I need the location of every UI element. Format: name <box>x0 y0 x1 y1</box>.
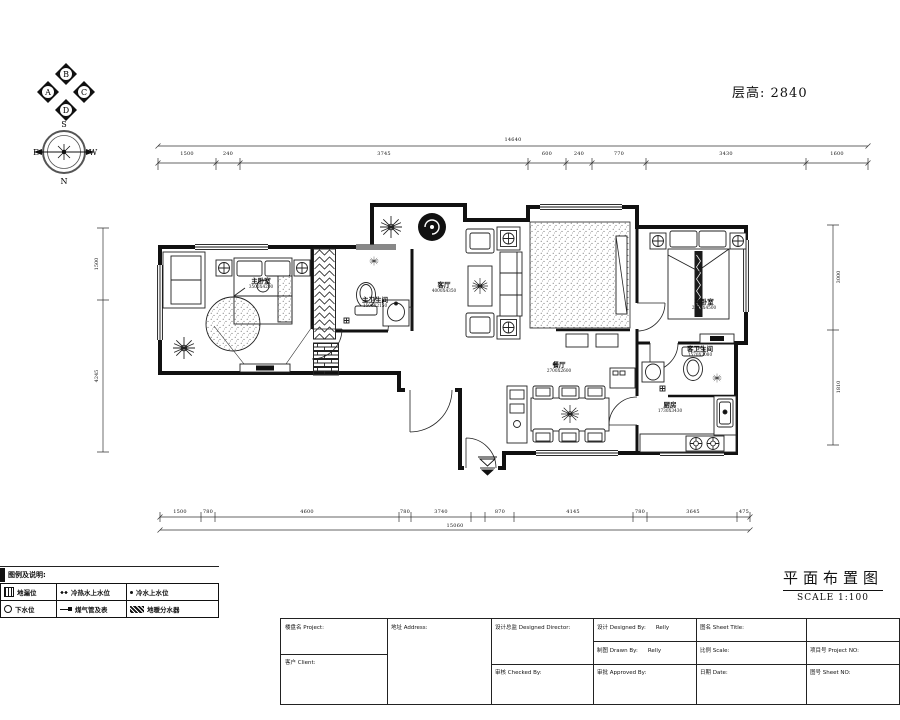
address-label: 地址 Address: <box>391 623 428 631</box>
floor-heating-manifold-icon <box>130 606 144 613</box>
dim-top: 600 <box>542 151 552 157</box>
floor-drain-icon <box>4 587 14 597</box>
room-label-kitchen: 厨房 1730X3430 <box>658 402 682 414</box>
dim-left: 4245 <box>94 370 100 383</box>
legend-label: 冷热水上水位 <box>71 587 110 597</box>
plant-icon <box>561 405 579 423</box>
legend-label: 地暖分水器 <box>147 604 180 614</box>
room-label-dining-room: 餐厅 2700X2600 <box>547 362 571 374</box>
dim-top: 770 <box>614 151 624 157</box>
design-director-label: 设计总监 Designed Director: <box>495 623 570 631</box>
compass-west: W <box>89 148 98 157</box>
room-size: 2745X4500 <box>692 306 716 311</box>
cold-water-icon <box>130 591 133 594</box>
entry-hall-decor <box>380 213 446 241</box>
room-label-guest-bedroom: 客卧室 2745X4500 <box>692 299 716 311</box>
brick-feature-wall <box>314 343 339 375</box>
dim-bottom: 4145 <box>566 509 580 515</box>
dim-top: 240 <box>574 151 584 157</box>
dining-room-furniture <box>507 386 609 443</box>
master-bathroom-fixtures <box>344 257 409 327</box>
guest-bedroom-furniture <box>650 231 746 343</box>
elevation-letter-a: A <box>44 88 51 97</box>
drawing-sheet: B A C D S N E W <box>0 0 900 720</box>
dim-bottom: 3740 <box>434 509 448 515</box>
dim-top: 1500 <box>180 151 194 157</box>
plant-icon <box>173 337 195 359</box>
room-label-master-bath: 主卫生间 1500X2150 <box>362 297 388 309</box>
room-size: 1500X2150 <box>362 304 388 309</box>
approved-by-label: 审批 Approved By: <box>597 668 646 676</box>
legend-item: 冷热水上水位 <box>57 584 127 601</box>
room-size: 2700X2600 <box>547 369 571 374</box>
legend-item: 下水位 <box>1 601 57 617</box>
dim-bottom: 4600 <box>300 509 314 515</box>
sheet-scale: SCALE 1:100 <box>768 593 898 603</box>
label: 制图 Drawn By: <box>597 648 638 654</box>
room-label-master-bedroom: 主卧室 3500X4200 <box>249 278 273 290</box>
legend-label: 下水位 <box>15 604 35 614</box>
dim-top: 240 <box>223 151 233 157</box>
title-block-table: 楼盘名 Project: 客户 Client: 地址 Address: 设计总监… <box>280 618 900 705</box>
elevation-marker-icon: B A C D <box>37 63 95 121</box>
compass-south: S <box>61 120 66 129</box>
dim-top: 1600 <box>830 151 844 157</box>
legend-item: 地暖分水器 <box>127 601 218 617</box>
legend-title: 图例及说明: <box>8 570 46 580</box>
sheet-title: 平面布置图 <box>783 567 883 591</box>
drawn-by-value: Relly <box>648 648 661 654</box>
legend-label: 煤气管及表 <box>75 604 108 614</box>
sheet-title-label: 图名 Sheet Title: <box>700 623 744 631</box>
legend-item: 冷水上水位 <box>127 584 218 601</box>
compass-icon: S N E W <box>33 120 98 186</box>
room-label-guest-bath: 客卫生间 1570X2080 <box>687 346 713 358</box>
dim-bottom: 3645 <box>686 509 700 515</box>
kitchen-fixtures <box>640 396 736 452</box>
room-size: 1570X2080 <box>687 353 713 358</box>
compass-north: N <box>61 177 68 186</box>
floor-height-label: 层高: 2840 <box>732 82 808 101</box>
dim-bottom: 780 <box>400 509 410 515</box>
drain-outlet-icon <box>4 605 12 613</box>
sheet-no-label: 图号 Sheet NO: <box>810 668 851 676</box>
dim-top-total: 14640 <box>505 137 522 143</box>
room-label-living-room: 客厅 4000X4350 <box>432 282 456 294</box>
living-room-furniture <box>466 227 522 339</box>
client-label: 客户 Client: <box>285 658 316 666</box>
project-no-label: 项目号 Project NO: <box>810 646 859 654</box>
legend-item: 地漏位 <box>1 584 57 601</box>
round-rug <box>206 297 260 351</box>
elevation-letter-d: D <box>63 106 69 115</box>
plant-icon <box>380 216 402 238</box>
dim-top: 3430 <box>719 151 733 157</box>
dim-bottom: 870 <box>495 509 505 515</box>
legend-title-tab <box>0 568 5 582</box>
sofa <box>500 252 522 316</box>
legend-item: 煤气管及表 <box>57 601 127 617</box>
designed-by-value: Relly <box>656 625 669 631</box>
dim-left: 1500 <box>94 258 100 271</box>
vent-icon <box>713 374 722 383</box>
dim-bottom: 780 <box>635 509 645 515</box>
legend-label: 地漏位 <box>17 587 37 597</box>
hot-cold-water-icon <box>60 591 68 594</box>
dim-right: 3000 <box>836 271 842 284</box>
sheet-title-block: 平面布置图 SCALE 1:100 <box>768 567 898 603</box>
room-size: 1730X3430 <box>658 409 682 414</box>
drawn-by-label: 制图 Drawn By:Relly <box>597 646 661 654</box>
dim-bottom-total: 15060 <box>447 523 464 529</box>
legend-label: 冷水上水位 <box>136 587 169 597</box>
wardrobe-closet <box>314 249 336 339</box>
legend: 图例及说明: 地漏位 冷热水上水位 冷水上水位 下水位 煤气管及表 地暖分水器 <box>0 566 219 618</box>
vent-icon <box>370 257 379 266</box>
elevation-letter-b: B <box>63 70 69 79</box>
dim-bottom: 475 <box>739 509 749 515</box>
compass-east: E <box>33 148 39 157</box>
dim-bottom: 1500 <box>173 509 187 515</box>
date-label: 日期 Date: <box>700 668 728 676</box>
room-size: 4000X4350 <box>432 289 456 294</box>
master-bedroom-furniture <box>163 252 314 372</box>
dim-top: 3745 <box>377 151 391 157</box>
textured-floor-area <box>530 222 630 347</box>
label: 设计 Designed By: <box>597 625 646 631</box>
gas-pipe-meter-icon <box>60 607 72 611</box>
scale-label: 比例 Scale: <box>700 646 729 654</box>
dim-right: 1810 <box>836 381 842 394</box>
room-size: 3500X4200 <box>249 285 273 290</box>
checked-by-label: 审核 Checked By: <box>495 668 542 676</box>
designed-by-label: 设计 Designed By:Relly <box>597 623 669 631</box>
dim-bottom: 780 <box>203 509 213 515</box>
elevation-letter-c: C <box>81 88 87 97</box>
project-label: 楼盘名 Project: <box>285 623 324 631</box>
